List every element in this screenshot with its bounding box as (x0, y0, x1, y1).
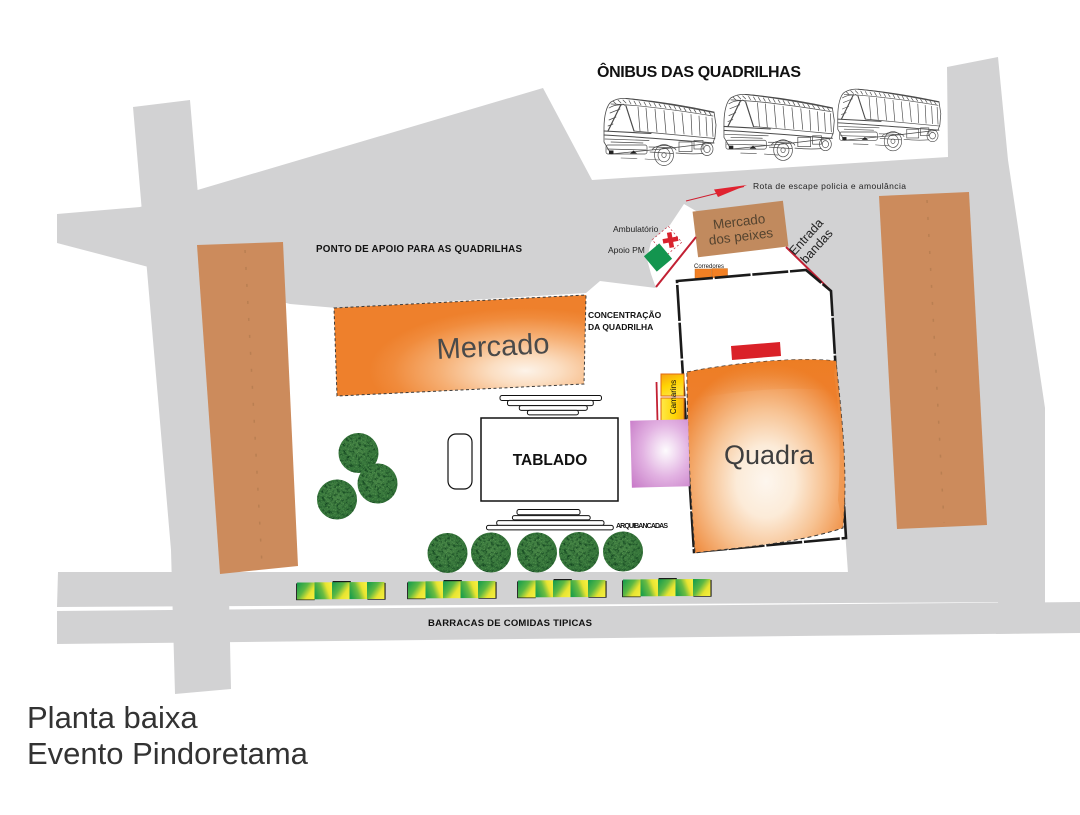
svg-text:TABLADO: TABLADO (513, 452, 588, 469)
svg-text:ARQUIBANCADAS: ARQUIBANCADAS (616, 523, 668, 530)
svg-text:Mercado: Mercado (436, 328, 550, 366)
svg-text:Planta baixa: Planta baixa (27, 700, 198, 735)
svg-text:Ambulatório: Ambulatório (613, 224, 659, 234)
svg-text:Quadra: Quadra (724, 440, 815, 470)
svg-text:CONCENTRAÇÃO: CONCENTRAÇÃO (588, 310, 662, 320)
svg-text:DA QUADRILHA: DA QUADRILHA (588, 322, 653, 332)
svg-text:Evento Pindoretama: Evento Pindoretama (27, 736, 309, 771)
svg-text:PONTO DE APOIO PARA AS QUADRIL: PONTO DE APOIO PARA AS QUADRILHAS (316, 244, 522, 255)
svg-text:BARRACAS DE COMIDAS TIPICAS: BARRACAS DE COMIDAS TIPICAS (428, 618, 592, 629)
svg-text:Apoio PM: Apoio PM (608, 245, 645, 255)
svg-text:Camarins: Camarins (669, 380, 678, 414)
svg-text:ÔNIBUS DAS QUADRILHAS: ÔNIBUS DAS QUADRILHAS (597, 62, 801, 81)
svg-text:Rota de escape policia e amoul: Rota de escape policia e amoulância (753, 181, 906, 191)
